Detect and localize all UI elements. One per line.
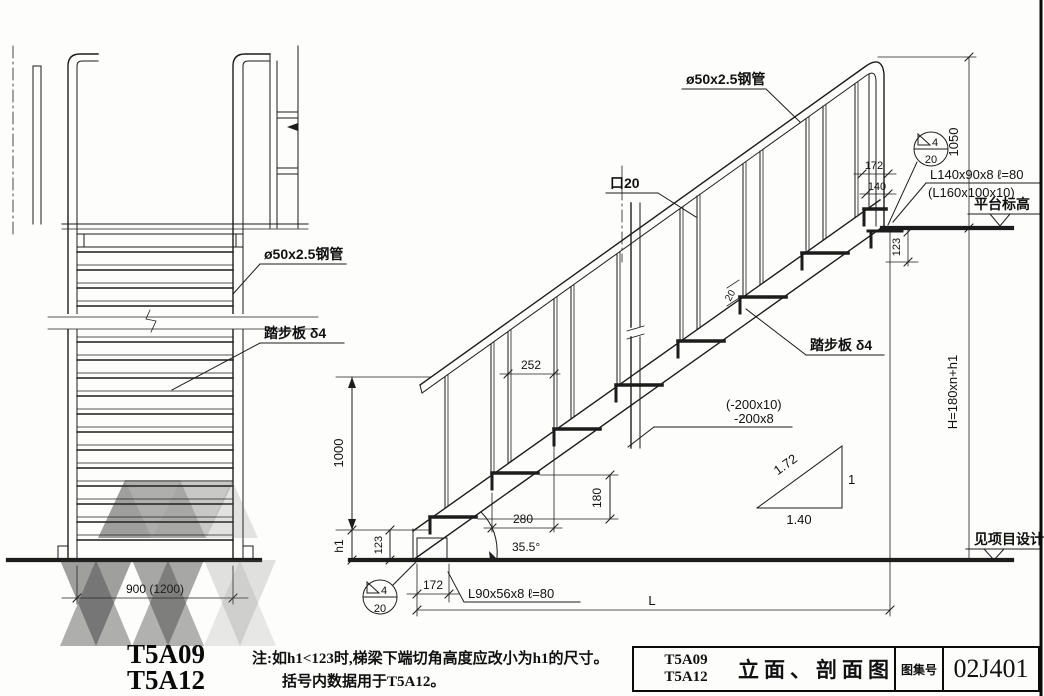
dim-1050-label: 1050 — [946, 128, 961, 157]
dim-angle-label: 35.5° — [512, 540, 540, 554]
scan-stain — [60, 480, 276, 646]
center-post — [622, 166, 644, 448]
weld-size-top: 4 — [932, 137, 938, 149]
title-code-2: T5A12 — [664, 669, 707, 686]
dim-140-label: 140 — [868, 181, 886, 193]
section-view: ø50x2.5钢管 口20 1050 172 140 4 20 — [331, 53, 1044, 616]
slope-triangle: 1.72 1 1.40 — [757, 446, 855, 527]
stringer-plate-label: (-200x10) — [726, 397, 782, 412]
dim-172-bottom-label: 172 — [423, 578, 443, 592]
dim-123-top: 123 — [886, 228, 918, 266]
square-bar-label: 口20 — [610, 175, 640, 191]
front-tread-label: 踏步板 δ4 — [264, 325, 326, 341]
dim-172-top-label: 172 — [865, 160, 883, 172]
weld-length-bottom: 20 — [374, 603, 386, 615]
stringer-top — [413, 200, 880, 531]
front-pipe-label: ø50x2.5钢管 — [264, 246, 343, 262]
slope-rise-label: 1 — [848, 472, 855, 487]
section-arrow-icon — [287, 123, 298, 131]
balusters — [445, 74, 869, 508]
drawing-note: 注:如h1<123时,梯梁下端切角高度应改小为h1的尺寸。 括号内数据用于T5A… — [252, 648, 642, 694]
note-line-1: 注:如h1<123时,梯梁下端切角高度应改小为h1的尺寸。 — [252, 648, 642, 671]
atlas-number: 02J401 — [944, 648, 1038, 690]
platform-level-callout: 平台标高 — [968, 196, 1042, 226]
height-formula-label: H=180xn+h1 — [945, 355, 960, 429]
section-pipe-label: ø50x2.5钢管 — [686, 71, 765, 87]
stringer-plate2-label: -200x8 — [734, 411, 774, 426]
title-block: T5A09 T5A12 立面、剖面图 图集号 02J401 — [632, 646, 1040, 692]
weld-size-bottom: 4 — [381, 585, 387, 597]
dim-172-bottom: 172 — [407, 564, 459, 616]
elevation-mark-icon — [990, 214, 1010, 226]
drawing-title: 立面、剖面图 — [738, 648, 894, 690]
model-code-1: T5A09 — [108, 641, 224, 667]
section-tread-label: 踏步板 δ4 — [810, 337, 872, 353]
dim-180: 180 — [478, 471, 618, 523]
model-code-2: T5A12 — [108, 667, 224, 693]
atlas-number-label: 图集号 — [894, 648, 944, 690]
dim-280-label: 280 — [513, 512, 533, 526]
tread-callout-section: 踏步板 δ4 — [746, 309, 884, 355]
dim-123-top-label: 123 — [891, 238, 903, 256]
platform-level-label: 平台标高 — [974, 196, 1030, 212]
weld-symbol-icon — [367, 582, 379, 593]
note-line-2: 括号内数据用于T5A12。 — [282, 671, 642, 694]
dim-123-bottom-label: 123 — [373, 536, 385, 554]
front-pipe-callout: ø50x2.5钢管 — [233, 246, 346, 294]
dim-1000: 1000 — [331, 377, 430, 530]
front-view: 900 (1200) ø50x2.5钢管 踏步板 δ4 — [8, 46, 346, 646]
project-level-label: 见项目设计 — [974, 531, 1044, 547]
dim-h1: h1 — [332, 526, 356, 564]
title-code-1: T5A09 — [664, 652, 707, 669]
weld-symbol-icon — [918, 134, 930, 145]
front-tread-callout: 踏步板 δ4 — [172, 325, 344, 390]
dim-180-label: 180 — [590, 488, 604, 508]
angle-top-label: L140x90x8 ℓ=80 — [930, 167, 1023, 182]
drawing-sheet: 900 (1200) ø50x2.5钢管 踏步板 δ4 — [0, 0, 1044, 696]
dim-172-140-top: 172 140 — [854, 160, 896, 198]
dim-252-label: 252 — [521, 358, 541, 372]
dim-1000-label: 1000 — [331, 439, 346, 468]
stringer-plate-callout: (-200x10) -200x8 — [628, 397, 792, 447]
dim-span-label: L — [648, 593, 655, 608]
weld-length-top: 20 — [925, 154, 937, 166]
model-codes: T5A09 T5A12 — [108, 641, 224, 693]
dim-h1-label: h1 — [332, 539, 346, 553]
slope-run-label: 1.40 — [786, 512, 811, 527]
project-level-callout: 见项目设计 — [966, 531, 1044, 560]
slope-hyp-label: 1.72 — [771, 451, 800, 478]
stringer-bottom — [413, 226, 884, 560]
angle-bottom-label: L90x56x8 ℓ=80 — [468, 586, 554, 601]
weld-callout-bottom: 4 20 — [363, 558, 420, 615]
dim-252: 252 — [500, 346, 560, 378]
title-block-codes: T5A09 T5A12 — [634, 648, 738, 690]
dim-bar20-label: 20 — [723, 288, 738, 303]
pipe-callout-section: ø50x2.5钢管 — [682, 71, 800, 122]
stair-drawing-canvas: 900 (1200) ø50x2.5钢管 踏步板 δ4 — [0, 0, 1044, 696]
section-treads — [430, 209, 886, 533]
angle-bottom-callout: L90x56x8 ℓ=80 — [448, 572, 580, 602]
square-bar-callout: 口20 — [606, 175, 696, 217]
